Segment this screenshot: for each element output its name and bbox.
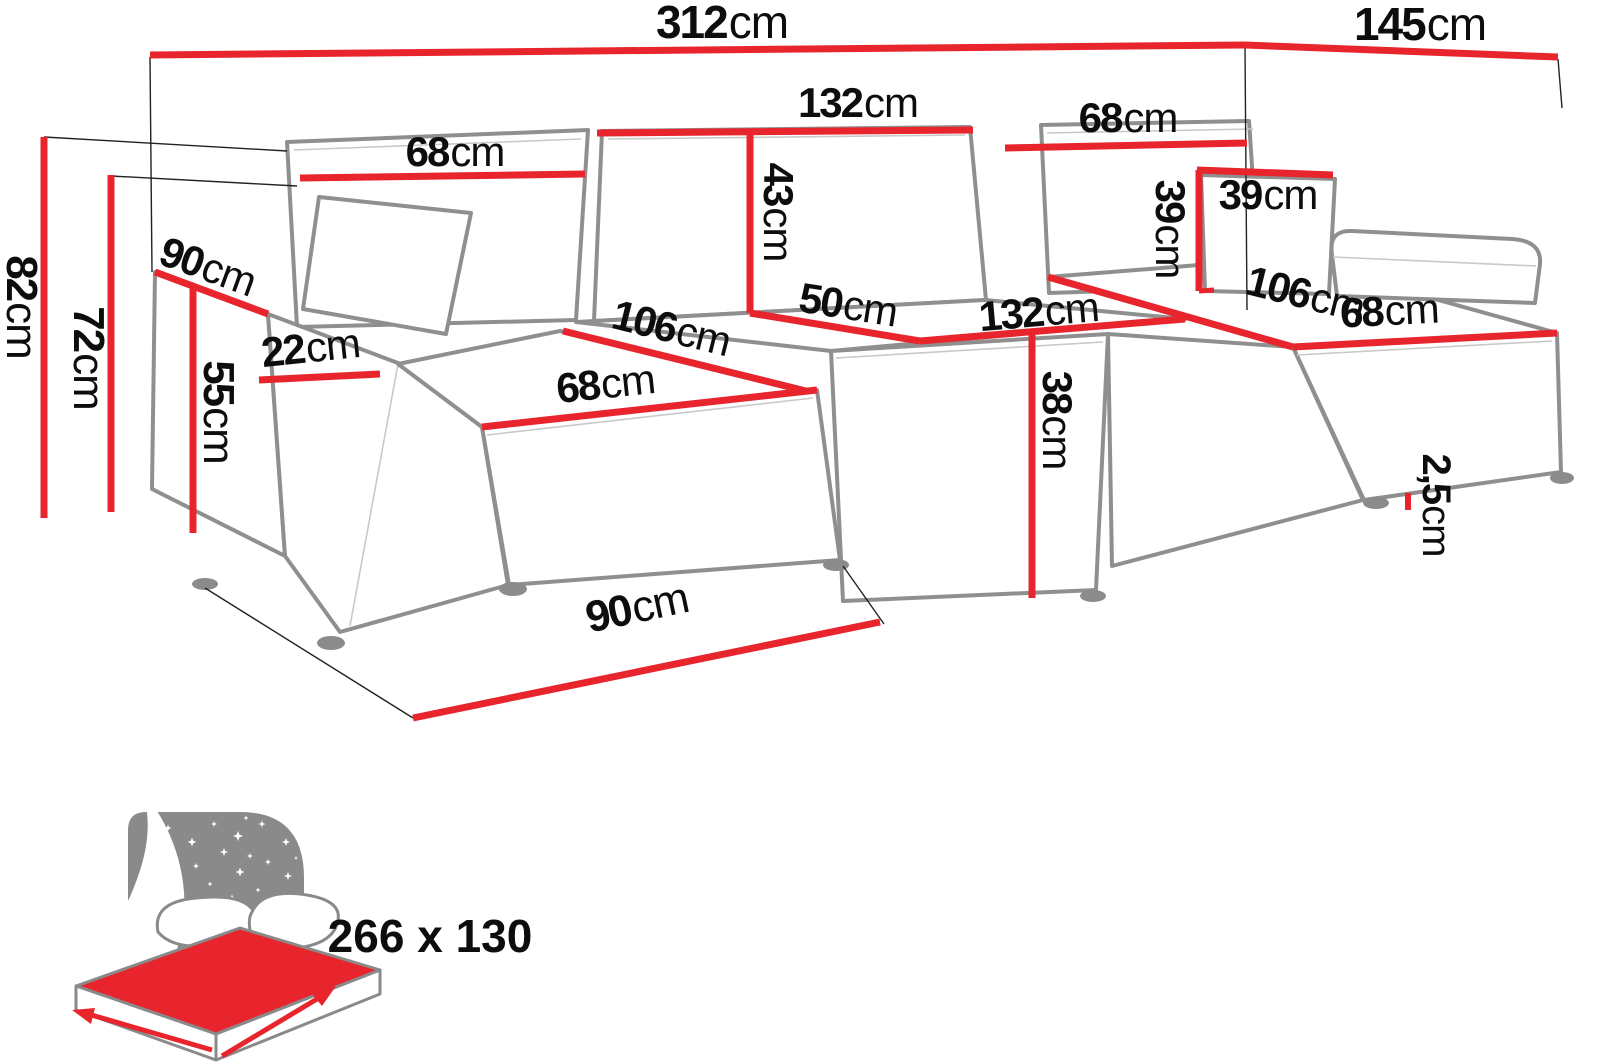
leg — [499, 582, 527, 596]
leg — [1080, 590, 1106, 602]
dim-backrest-right-width: 68cm — [1079, 94, 1178, 141]
leg — [1550, 472, 1574, 484]
dim-line-front-depth — [413, 622, 880, 718]
dim-line-backrest-right — [1005, 143, 1247, 148]
dim-backrest-left-width: 68cm — [406, 128, 505, 175]
leg — [317, 636, 345, 650]
sleeping-area-icon: 266 x 130 — [72, 790, 532, 1060]
dim-chaise-right-width: 68cm — [1339, 284, 1440, 336]
arrow-head-icon — [72, 1008, 95, 1024]
dim-armrest-height: 55cm — [194, 360, 243, 464]
dim-front-depth: 90cm — [581, 573, 693, 642]
pillow-left — [303, 197, 471, 334]
dim-leg-height: 2,5cm — [1414, 454, 1458, 557]
leg — [1363, 497, 1389, 509]
dim-overall-width: 312cm — [656, 0, 788, 48]
dim-seat-width: 132cm — [977, 283, 1101, 340]
dim-back-height: 72cm — [64, 306, 113, 410]
dim-line-cushion-foot — [1199, 290, 1214, 291]
sofa-outline — [152, 121, 1574, 650]
star-icon — [290, 820, 295, 825]
diagram-canvas: 312cm 145cm 68cm 132cm 68cm 39cm 39cm 43… — [0, 0, 1600, 1064]
sleeping-size-label: 266 x 130 — [328, 910, 533, 962]
dim-line-backrest-mid — [597, 130, 973, 133]
dim-total-height: 82cm — [0, 255, 46, 359]
dim-cushion-height: 39cm — [1147, 180, 1194, 279]
dim-backrest-height: 43cm — [755, 163, 802, 262]
dim-cushion-width: 39cm — [1219, 171, 1318, 218]
dim-backrest-mid-width: 132cm — [798, 79, 918, 126]
sofa-dimension-diagram: 312cm 145cm 68cm 132cm 68cm 39cm 39cm 43… — [0, 0, 1600, 1064]
dim-overall-depth: 145cm — [1354, 0, 1486, 50]
dim-seat-height: 38cm — [1034, 371, 1081, 470]
